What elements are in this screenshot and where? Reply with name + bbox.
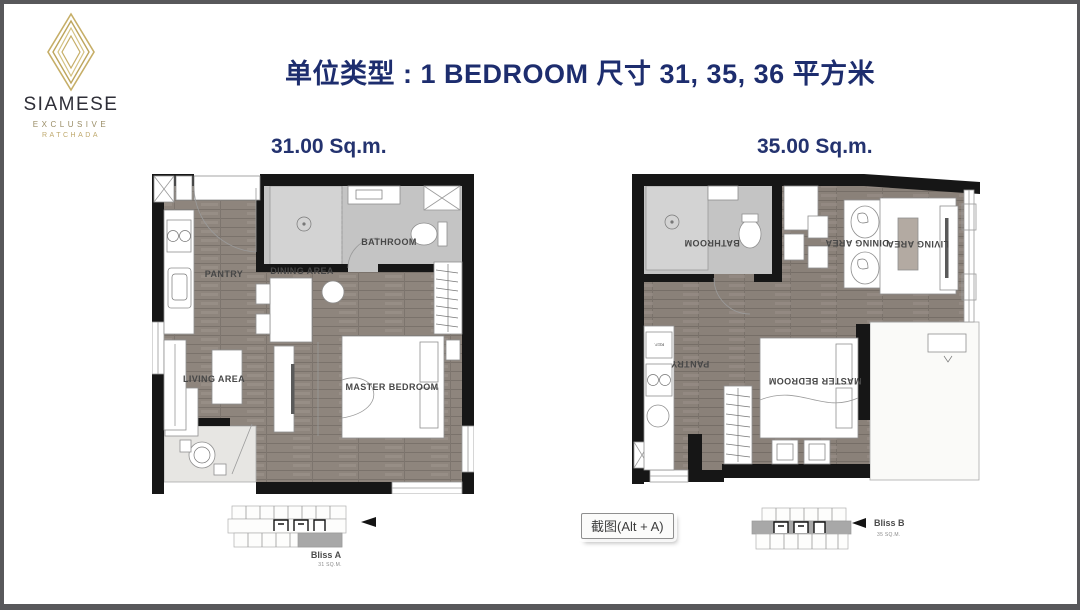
screenshot-tooltip[interactable]: 截图(Alt + A) xyxy=(581,513,674,539)
brand-logo: SIAMESE EXCLUSIVE RATCHADA xyxy=(12,12,130,139)
keyplan-name: Bliss A xyxy=(311,550,342,560)
page-title: 单位类型 : 1 BEDROOM 尺寸 31, 35, 36 平方米 xyxy=(285,52,875,91)
room-label-bathroom: BATHROOM xyxy=(684,238,740,248)
room-label-dining: DINING AREA xyxy=(270,266,334,276)
stove xyxy=(646,364,672,396)
brand-subtitle: EXCLUSIVE xyxy=(12,120,130,129)
highlighted-units xyxy=(298,533,342,547)
keyplan-bliss-b: Bliss B 35 SQ.M. xyxy=(744,500,994,572)
toilet xyxy=(739,220,761,248)
dining-chair xyxy=(256,284,270,304)
slide: SIAMESE EXCLUSIVE RATCHADA 单位类型 : 1 BEDR… xyxy=(0,0,1080,610)
building-outline xyxy=(228,506,346,547)
nightstand xyxy=(446,340,460,360)
keyplan-bliss-a: Bliss A 31 SQ.M. xyxy=(226,500,456,572)
dining-chair xyxy=(808,216,828,238)
building-outline xyxy=(752,508,851,549)
shower-area xyxy=(646,186,708,270)
entry-closet xyxy=(194,176,260,200)
shower-area xyxy=(270,186,342,266)
room-label-living: LIVING AREA xyxy=(183,374,245,384)
ac-unit xyxy=(928,334,966,352)
stove xyxy=(167,220,191,252)
keyplan-area: 35 SQ.M. xyxy=(877,532,901,538)
dining-chair xyxy=(851,252,879,284)
room-label-bedroom: MASTER BEDROOM xyxy=(768,376,861,386)
vanity xyxy=(708,186,738,200)
room-label-pantry: PANTRY xyxy=(671,359,709,369)
dining-chair xyxy=(851,206,879,238)
pillow xyxy=(836,388,852,428)
room-label-dining: DINING AREA xyxy=(825,238,889,248)
room-label-bedroom: MASTER BEDROOM xyxy=(345,382,438,392)
pillow xyxy=(420,342,438,382)
stool xyxy=(322,281,344,303)
brand-name: SIAMESE xyxy=(12,94,130,116)
armchair xyxy=(804,440,830,464)
armchair xyxy=(772,440,798,464)
keyplan-area: 31 SQ.M. xyxy=(318,562,342,568)
brand-location: RATCHADA xyxy=(12,132,130,139)
tv xyxy=(291,364,295,414)
pillow xyxy=(420,388,438,428)
plan-b-size-label: 35.00 Sq.m. xyxy=(757,135,873,159)
dining-chair xyxy=(808,246,828,268)
balcony-chair xyxy=(214,464,226,475)
floorplan-35sqm: REF. BATHROOM DINING AREA LIVING AREA xyxy=(632,174,982,494)
dining-chair xyxy=(256,314,270,334)
room-label-pantry: PANTRY xyxy=(205,269,243,279)
unit-glyphs xyxy=(774,522,825,533)
diamond-logo-icon xyxy=(44,12,98,92)
balcony-chair xyxy=(180,440,191,452)
room-label-living: LIVING AREA xyxy=(887,239,949,249)
arrow-left-icon xyxy=(361,517,376,527)
floorplan-31sqm: REF. xyxy=(152,174,474,494)
room-label-bathroom: BATHROOM xyxy=(361,237,417,247)
unit-glyphs xyxy=(274,520,325,531)
fridge-label: REF. xyxy=(654,342,665,347)
sink xyxy=(647,405,669,427)
dining-table xyxy=(270,278,312,342)
keyplan-name: Bliss B xyxy=(874,518,905,528)
arrow-left-icon xyxy=(852,518,866,528)
plan-a-size-label: 31.00 Sq.m. xyxy=(271,135,387,159)
balcony-table xyxy=(189,442,215,468)
